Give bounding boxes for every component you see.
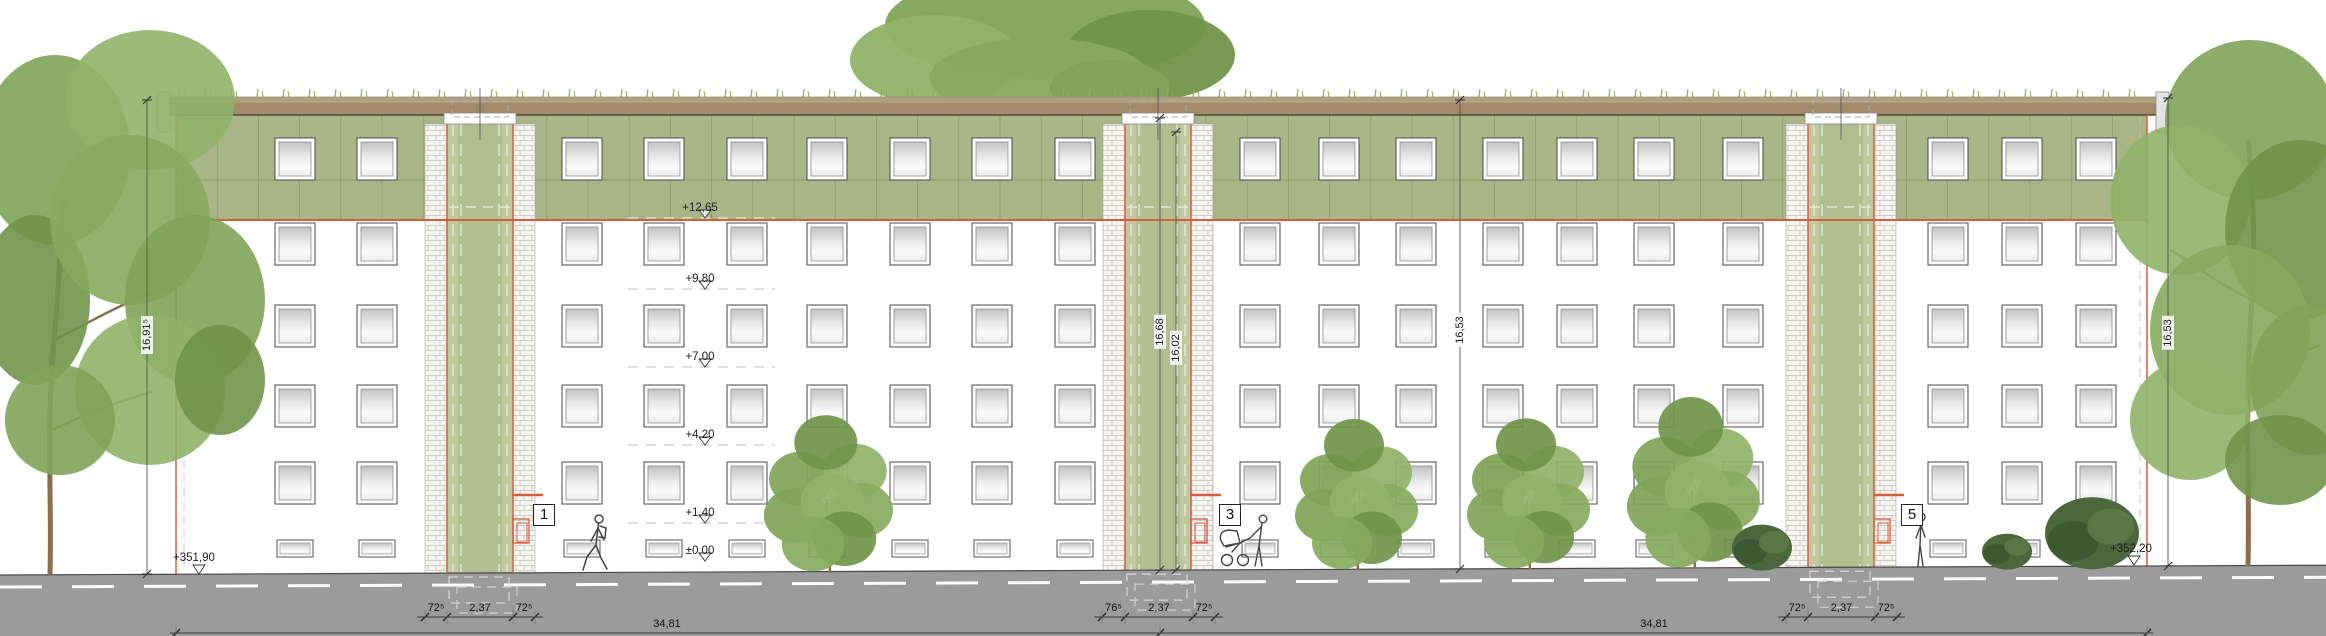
stair-tower — [1786, 88, 1904, 578]
basement-window — [1057, 540, 1093, 557]
window — [1928, 223, 1968, 265]
window — [644, 462, 684, 504]
basement-window — [564, 540, 600, 557]
stair-tower — [425, 88, 543, 578]
window — [1240, 305, 1280, 347]
window — [1557, 305, 1597, 347]
window — [1055, 305, 1095, 347]
window — [727, 305, 767, 347]
building-facade — [157, 88, 2169, 578]
window — [890, 385, 930, 427]
window — [1483, 138, 1523, 180]
bush — [1982, 534, 2032, 570]
window — [1928, 138, 1968, 180]
window — [1055, 385, 1095, 427]
window — [1055, 138, 1095, 180]
window — [562, 138, 602, 180]
window — [357, 138, 397, 180]
window — [644, 138, 684, 180]
window — [1557, 223, 1597, 265]
window — [562, 305, 602, 347]
window — [1634, 138, 1674, 180]
stair-tower — [1103, 88, 1221, 578]
window — [1240, 223, 1280, 265]
window — [1928, 305, 1968, 347]
window — [1634, 305, 1674, 347]
window — [972, 462, 1012, 504]
window — [1240, 462, 1280, 504]
window — [1240, 385, 1280, 427]
window — [2076, 138, 2116, 180]
window — [972, 385, 1012, 427]
window — [972, 138, 1012, 180]
window — [807, 305, 847, 347]
window — [1319, 223, 1359, 265]
window — [972, 305, 1012, 347]
window — [727, 138, 767, 180]
basement-window — [892, 540, 928, 557]
window — [562, 462, 602, 504]
window — [2076, 305, 2116, 347]
bush — [2045, 497, 2139, 569]
window — [2002, 462, 2042, 504]
basement-window — [729, 540, 765, 557]
basement-window — [1398, 540, 1434, 557]
window — [2076, 385, 2116, 427]
window — [644, 223, 684, 265]
window — [357, 385, 397, 427]
window — [1055, 223, 1095, 265]
window — [1396, 223, 1436, 265]
window — [275, 385, 315, 427]
window — [275, 223, 315, 265]
window — [1055, 462, 1095, 504]
window — [1319, 138, 1359, 180]
window — [890, 223, 930, 265]
window — [807, 138, 847, 180]
window — [357, 305, 397, 347]
elevation-scene — [0, 0, 2326, 636]
window — [275, 305, 315, 347]
window — [1723, 223, 1763, 265]
window — [1928, 462, 1968, 504]
window — [972, 223, 1012, 265]
window — [2076, 223, 2116, 265]
basement-window — [359, 540, 395, 557]
window — [275, 462, 315, 504]
window — [1557, 385, 1597, 427]
window — [1723, 305, 1763, 347]
window — [890, 138, 930, 180]
window — [2002, 305, 2042, 347]
window — [562, 223, 602, 265]
window — [1723, 138, 1763, 180]
window — [1396, 385, 1436, 427]
window — [890, 305, 930, 347]
window — [1240, 138, 1280, 180]
window — [275, 138, 315, 180]
window — [727, 223, 767, 265]
bush — [1732, 525, 1792, 571]
basement-window — [974, 540, 1010, 557]
window — [727, 462, 767, 504]
window — [1928, 385, 1968, 427]
window — [1396, 138, 1436, 180]
window — [2002, 385, 2042, 427]
window — [357, 223, 397, 265]
window — [2002, 138, 2042, 180]
window — [2002, 223, 2042, 265]
window — [1634, 223, 1674, 265]
window — [562, 385, 602, 427]
window — [1557, 138, 1597, 180]
window — [357, 462, 397, 504]
window — [1483, 305, 1523, 347]
window — [644, 385, 684, 427]
window — [890, 462, 930, 504]
window — [1483, 223, 1523, 265]
window — [727, 385, 767, 427]
window — [1723, 385, 1763, 427]
basement-window — [1930, 540, 1966, 557]
basement-window — [646, 540, 682, 557]
window — [807, 223, 847, 265]
window — [1319, 305, 1359, 347]
basement-window — [277, 540, 313, 557]
window — [1396, 305, 1436, 347]
window — [644, 305, 684, 347]
elevation-drawing-canvas: +12,65+9,80+7,00+4,20+1,40±0,00+351,90+3… — [0, 0, 2326, 636]
